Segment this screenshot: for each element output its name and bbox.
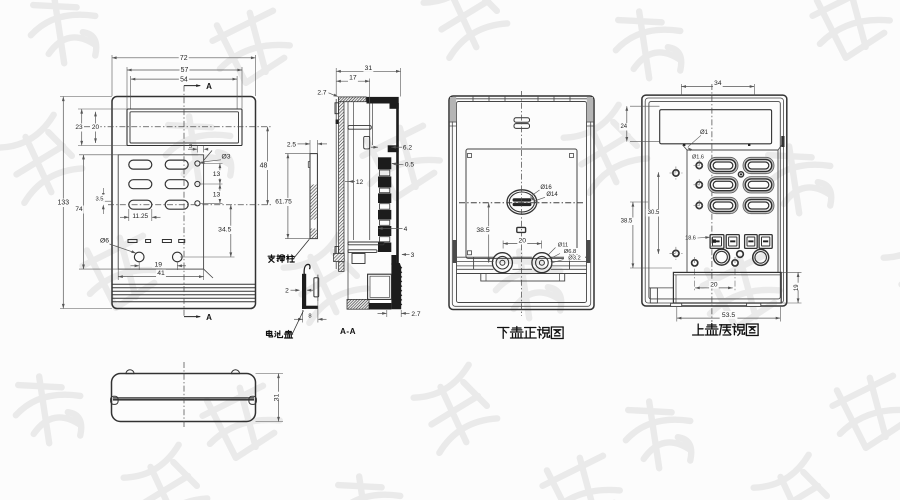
svg-text:53.5: 53.5 (722, 312, 735, 319)
svg-text:Ø16: Ø16 (540, 185, 552, 191)
svg-text:A: A (206, 313, 212, 322)
svg-text:30.5: 30.5 (648, 210, 660, 216)
svg-text:133: 133 (58, 200, 70, 207)
svg-text:19: 19 (794, 284, 800, 291)
svg-text:Ø6: Ø6 (100, 238, 109, 245)
svg-text:3: 3 (411, 252, 415, 259)
svg-text:4: 4 (404, 226, 408, 233)
svg-text:54: 54 (180, 76, 188, 83)
svg-text:13: 13 (213, 192, 221, 199)
svg-text:Ø1.6: Ø1.6 (692, 154, 704, 160)
svg-text:0.5: 0.5 (405, 162, 414, 169)
svg-text:18.6: 18.6 (685, 236, 696, 242)
svg-text:Ø3: Ø3 (221, 154, 230, 161)
svg-text:19: 19 (155, 262, 163, 269)
svg-text:Ø1: Ø1 (700, 130, 709, 136)
svg-text:57: 57 (181, 67, 189, 74)
svg-text:11.25: 11.25 (132, 213, 148, 220)
svg-text:8: 8 (308, 314, 311, 320)
svg-text:2.7: 2.7 (411, 311, 420, 318)
svg-text:72: 72 (180, 55, 188, 62)
svg-text:23: 23 (75, 124, 83, 131)
svg-text:12: 12 (356, 179, 364, 186)
svg-text:61.75: 61.75 (275, 199, 292, 206)
svg-text:Ø11: Ø11 (558, 243, 569, 249)
svg-text:41: 41 (157, 270, 165, 277)
svg-text:31: 31 (365, 65, 373, 72)
svg-text:Ø6.8: Ø6.8 (564, 249, 577, 255)
svg-text:2.5: 2.5 (287, 142, 296, 149)
svg-text:Ø3.2: Ø3.2 (568, 256, 581, 262)
svg-text:34: 34 (714, 80, 722, 87)
svg-text:3.5: 3.5 (95, 197, 103, 203)
svg-text:3: 3 (189, 144, 192, 150)
svg-text:2: 2 (285, 288, 289, 295)
svg-text:38.5: 38.5 (621, 219, 633, 225)
svg-text:20: 20 (710, 282, 718, 289)
svg-text:31: 31 (274, 394, 281, 402)
svg-text:34.5: 34.5 (218, 227, 231, 234)
svg-text:2.7: 2.7 (317, 89, 326, 96)
svg-text:20: 20 (92, 124, 100, 131)
svg-text:A-A: A-A (340, 327, 356, 336)
svg-text:48: 48 (260, 163, 268, 170)
svg-text:13: 13 (213, 171, 221, 178)
svg-text:38.5: 38.5 (476, 227, 489, 234)
svg-text:74: 74 (75, 206, 83, 213)
svg-text:17: 17 (349, 75, 357, 82)
svg-text:6.2: 6.2 (403, 145, 412, 152)
svg-text:24: 24 (620, 124, 627, 130)
svg-text:Ø14: Ø14 (546, 192, 558, 198)
svg-text:20: 20 (519, 237, 527, 244)
svg-text:A: A (206, 82, 212, 91)
